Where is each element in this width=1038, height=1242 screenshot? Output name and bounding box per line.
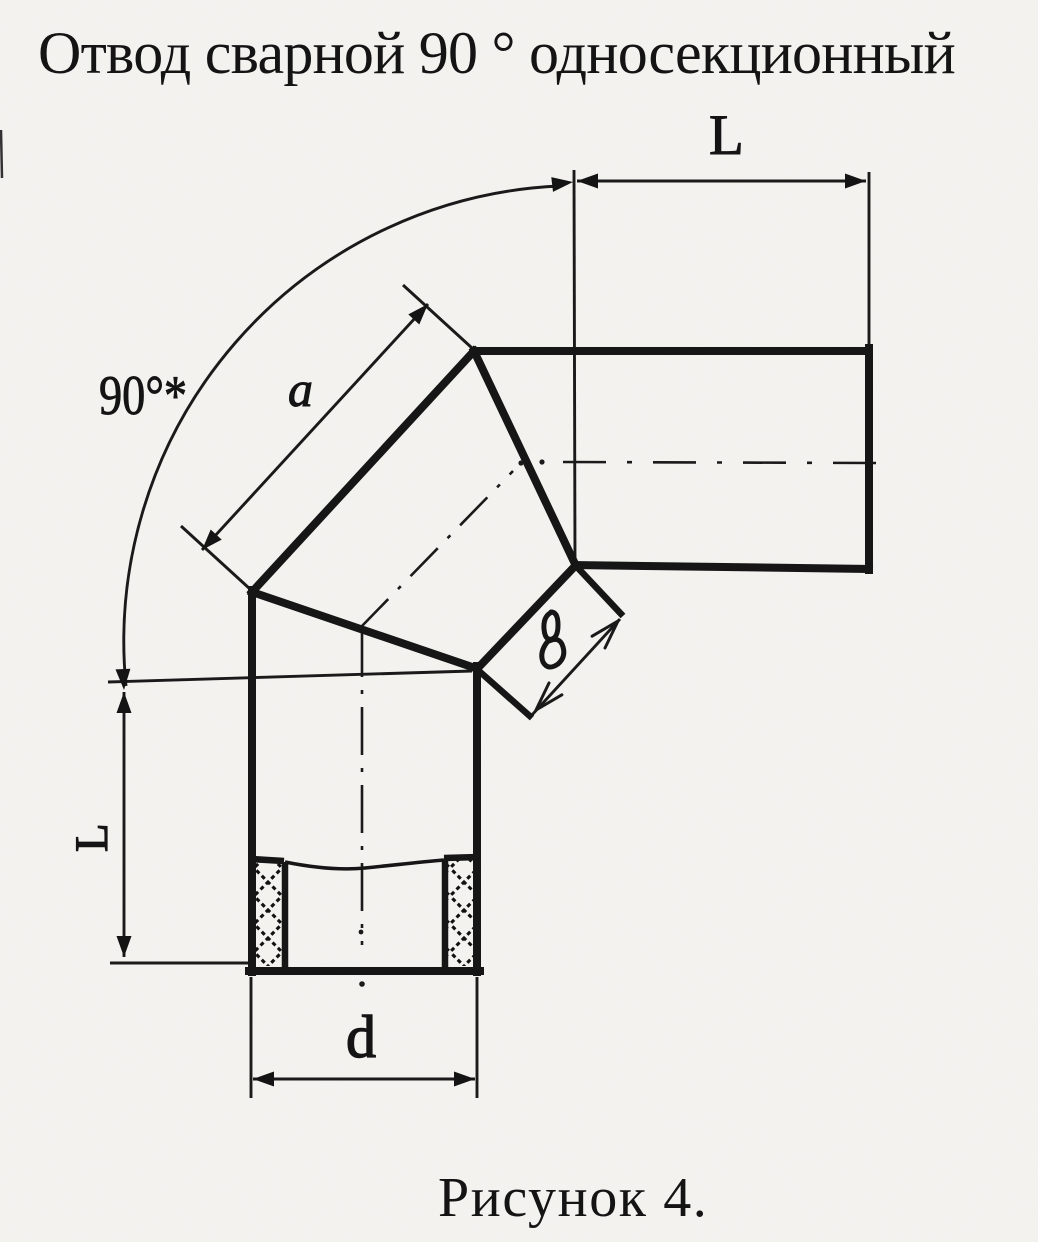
svg-text:L: L (709, 104, 744, 167)
svg-text:90°*: 90°* (99, 365, 187, 427)
svg-text:L: L (66, 823, 118, 852)
svg-text:d: d (346, 1004, 376, 1070)
svg-text:Отвод сварной 90 ° односекцион: Отвод сварной 90 ° односекционный (38, 20, 955, 86)
svg-text:Рисунок 4.: Рисунок 4. (438, 1167, 708, 1229)
svg-text:a: a (288, 361, 313, 417)
